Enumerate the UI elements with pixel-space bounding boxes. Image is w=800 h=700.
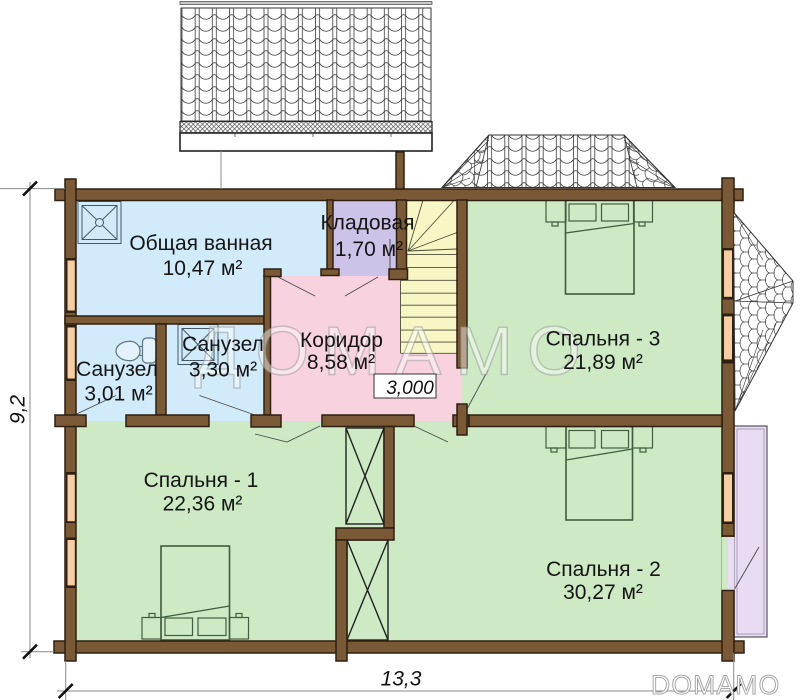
svg-text:1,70 м²: 1,70 м² [335,238,403,261]
svg-text:3,01 м²: 3,01 м² [84,383,152,406]
svg-text:9,2: 9,2 [7,395,30,425]
svg-text:22,36 м²: 22,36 м² [163,493,243,516]
svg-text:Санузел: Санузел [182,333,264,356]
svg-text:DOMAMO: DOMAMO [651,670,780,700]
svg-text:Спальня - 2: Спальня - 2 [546,558,661,581]
svg-text:3,30 м²: 3,30 м² [189,359,257,382]
svg-text:Общая ванная: Общая ванная [129,232,272,255]
svg-text:Коридор: Коридор [300,329,383,352]
svg-text:3,000: 3,000 [386,378,434,399]
svg-text:10,47 м²: 10,47 м² [163,257,243,280]
svg-text:Кладовая: Кладовая [320,212,414,235]
svg-text:21,89 м²: 21,89 м² [563,351,643,374]
svg-text:30,27 м²: 30,27 м² [563,581,643,604]
svg-text:Санузел: Санузел [76,358,158,381]
svg-text:13,3: 13,3 [381,668,422,691]
svg-text:Спальня - 3: Спальня - 3 [546,328,661,351]
svg-text:Спальня - 1: Спальня - 1 [144,469,259,492]
svg-text:8,58 м²: 8,58 м² [307,351,375,374]
